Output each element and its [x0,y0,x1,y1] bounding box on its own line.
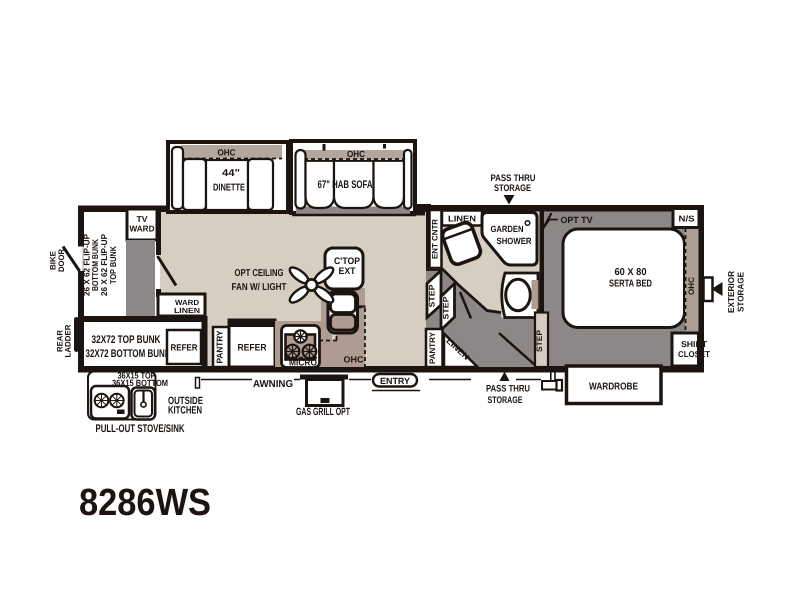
svg-text:60 X 80: 60 X 80 [614,267,646,278]
svg-text:STORAGE: STORAGE [487,395,522,406]
svg-text:KITCHEN: KITCHEN [168,405,202,417]
svg-text:OPT CEILING: OPT CEILING [235,268,284,279]
svg-text:STEP: STEP [535,329,544,352]
svg-text:WARD: WARD [130,224,155,234]
svg-text:CLOSET: CLOSET [678,349,711,359]
svg-text:TOP BUNK: TOP BUNK [108,245,118,284]
svg-text:DOOR: DOOR [57,249,66,272]
svg-text:SHOWER: SHOWER [496,236,531,246]
svg-text:EXT: EXT [338,266,355,277]
svg-text:PANTRY: PANTRY [215,330,225,363]
svg-text:OHC: OHC [344,355,365,365]
svg-text:32X72 BOTTOM BUNK: 32X72 BOTTOM BUNK [86,348,171,360]
svg-text:SHIRT: SHIRT [681,339,708,349]
svg-text:WARDROBE: WARDROBE [589,382,638,393]
svg-text:N/S: N/S [679,214,695,224]
svg-text:FAN W/ LIGHT: FAN W/ LIGHT [232,282,287,293]
svg-text:EXTERIOR: EXTERIOR [726,271,736,313]
svg-text:OHC: OHC [687,277,696,295]
svg-text:OHC: OHC [218,148,236,158]
svg-text:GAS GRILL OPT: GAS GRILL OPT [296,406,350,418]
svg-text:PASS THRU: PASS THRU [486,384,530,395]
svg-text:OHC: OHC [347,149,365,159]
svg-text:TV: TV [136,214,147,224]
svg-text:LADDER: LADDER [64,324,73,357]
svg-text:MICRO: MICRO [289,358,317,368]
svg-text:36X15 BOTTOM: 36X15 BOTTOM [112,378,168,388]
svg-text:STORAGE: STORAGE [494,183,531,194]
svg-text:STORAGE: STORAGE [736,272,746,312]
svg-text:STEP: STEP [442,296,451,320]
svg-text:PULL-OUT STOVE/SINK: PULL-OUT STOVE/SINK [95,423,184,435]
svg-text:PANTRY: PANTRY [428,331,437,364]
svg-text:ENTRY: ENTRY [380,376,410,386]
svg-text:DINETTE: DINETTE [213,183,245,194]
svg-text:STEP: STEP [428,284,437,308]
svg-text:67" HAB SOFA: 67" HAB SOFA [318,179,373,191]
svg-text:AWNING: AWNING [253,379,293,390]
svg-text:OPT TV: OPT TV [561,215,593,225]
svg-text:8286WS: 8286WS [79,482,211,524]
svg-text:ENT CNTR: ENT CNTR [431,219,440,259]
svg-text:REFER: REFER [170,343,197,353]
svg-text:REFER: REFER [238,343,267,354]
svg-text:44": 44" [222,168,240,179]
svg-text:LINEN: LINEN [174,306,200,315]
svg-text:GARDEN: GARDEN [491,224,524,234]
svg-text:SERTA BED: SERTA BED [609,279,652,290]
svg-text:32X72 TOP BUNK: 32X72 TOP BUNK [92,334,161,346]
